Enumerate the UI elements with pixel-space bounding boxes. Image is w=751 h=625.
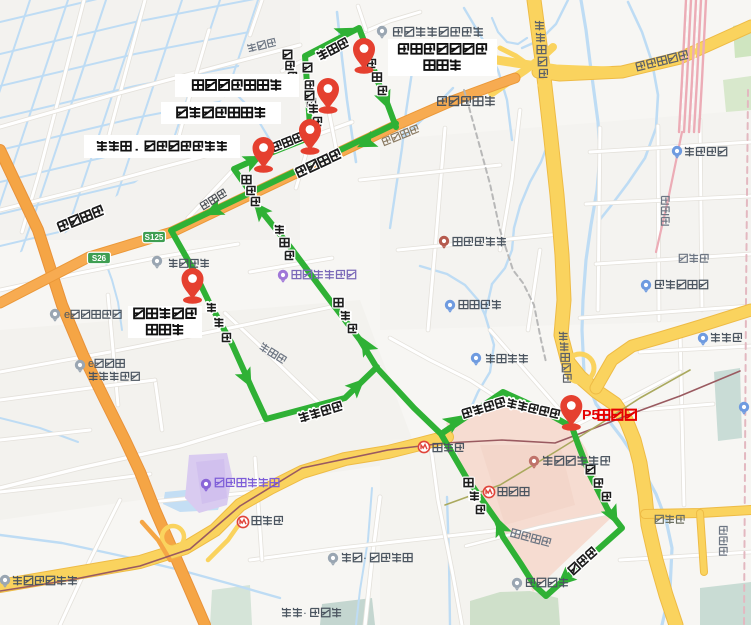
svg-text:P5: P5 — [582, 408, 599, 424]
svg-text:e: e — [88, 358, 94, 370]
svg-text:·: · — [303, 607, 307, 620]
svg-text:S26: S26 — [92, 254, 107, 263]
svg-text:e: e — [64, 309, 70, 321]
svg-text:S125: S125 — [145, 233, 164, 242]
svg-text:·: · — [363, 552, 367, 565]
